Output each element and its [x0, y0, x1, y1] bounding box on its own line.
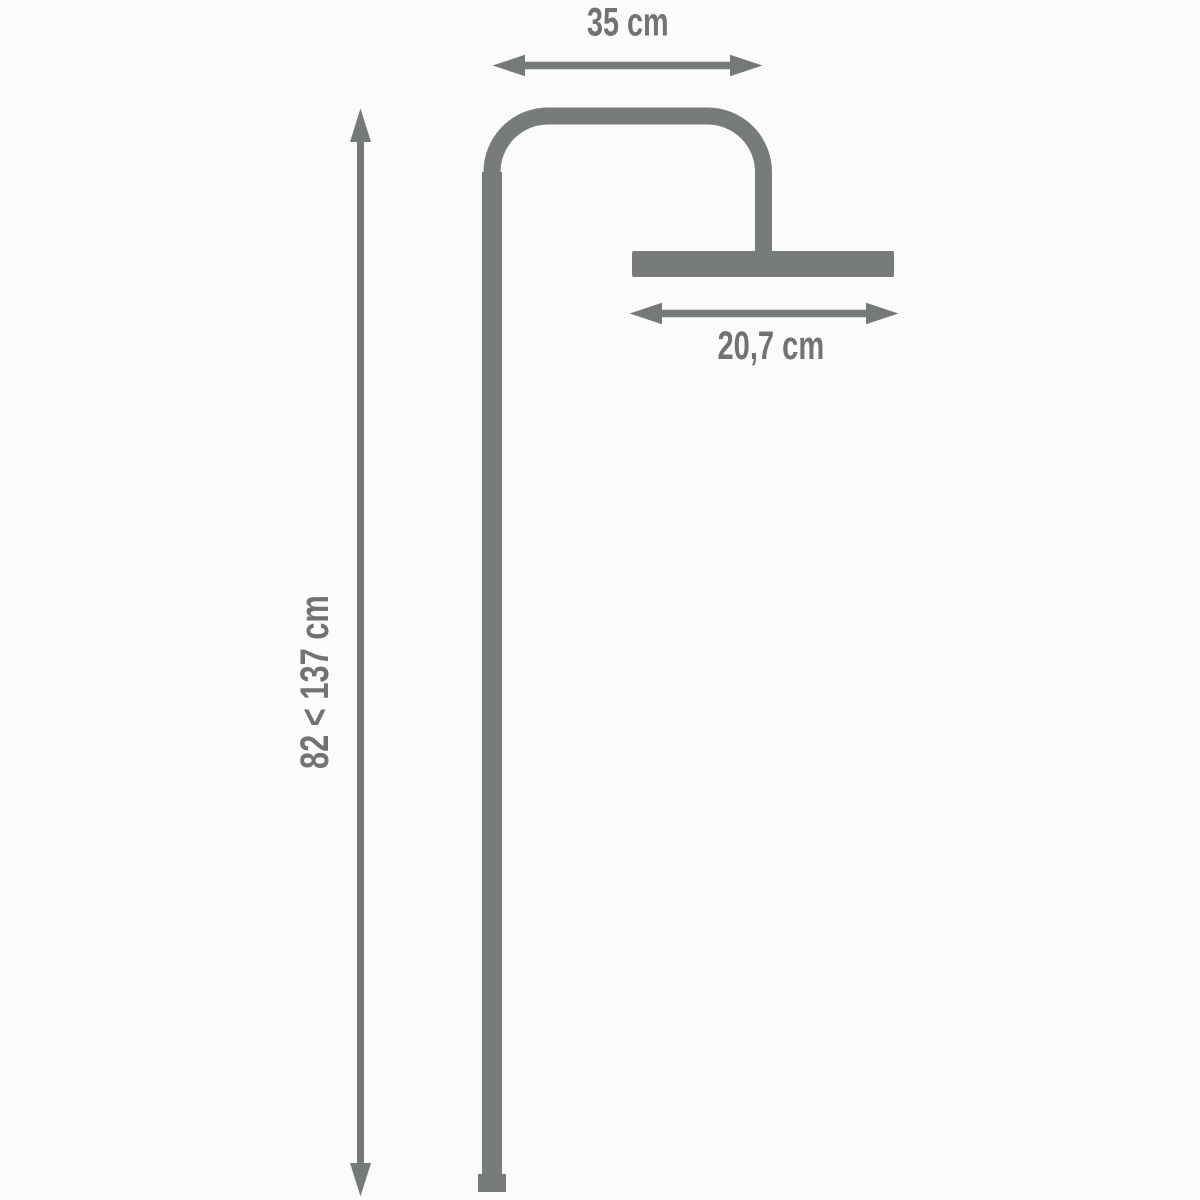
svg-text:20,7 cm: 20,7 cm — [718, 324, 825, 369]
svg-text:35 cm: 35 cm — [587, 0, 669, 45]
svg-text:82 < 137 cm: 82 < 137 cm — [292, 595, 337, 769]
